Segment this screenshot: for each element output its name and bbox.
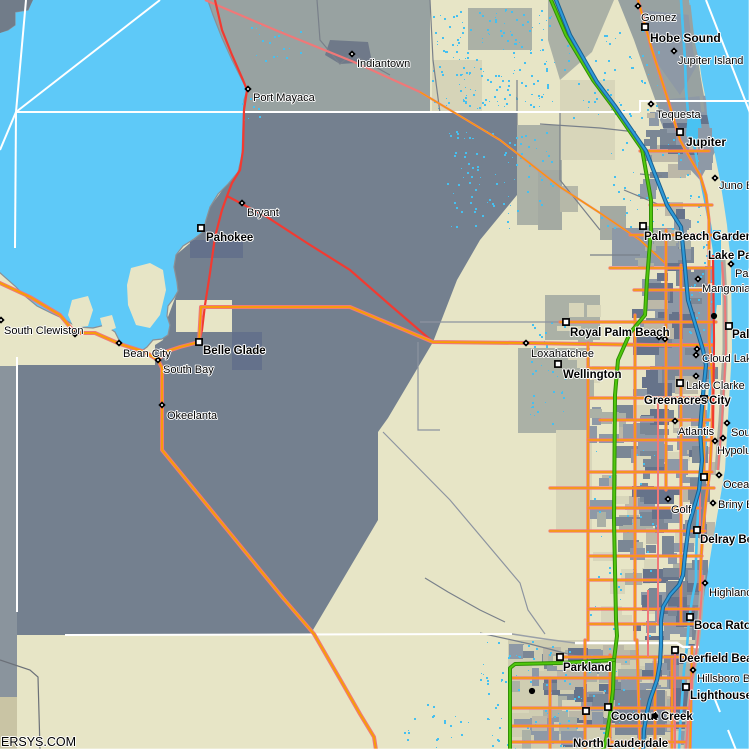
svg-text:Parkland: Parkland	[563, 662, 612, 674]
svg-text:Golf: Golf	[671, 504, 692, 516]
svg-text:Lake Clarke: Lake Clarke	[686, 380, 745, 392]
svg-text:Sout: Sout	[731, 427, 750, 439]
svg-text:North Lauderdale: North Lauderdale	[573, 738, 668, 750]
svg-text:Palm: Palm	[732, 329, 750, 341]
svg-text:Atlantis: Atlantis	[678, 426, 715, 438]
svg-text:Gomez: Gomez	[641, 12, 676, 24]
svg-text:Deerfield Bea: Deerfield Bea	[679, 653, 750, 665]
svg-text:South Clewiston: South Clewiston	[4, 325, 84, 337]
svg-text:Ocean: Ocean	[723, 479, 750, 491]
svg-text:Okeelanta: Okeelanta	[167, 410, 218, 422]
svg-text:Tequesta: Tequesta	[656, 109, 702, 121]
svg-text:Port Mayaca: Port Mayaca	[253, 92, 316, 104]
svg-text:Pahokee: Pahokee	[206, 232, 253, 244]
svg-text:Delray Be: Delray Be	[700, 534, 750, 546]
svg-text:South Bay: South Bay	[163, 364, 214, 376]
svg-text:Juno B: Juno B	[719, 180, 750, 192]
svg-text:Bean City: Bean City	[123, 348, 171, 360]
svg-text:City: City	[709, 395, 731, 407]
svg-text:Loxahatchee: Loxahatchee	[531, 348, 594, 360]
svg-text:Lake Pa: Lake Pa	[708, 250, 750, 262]
svg-text:Hillsboro Be: Hillsboro Be	[697, 673, 750, 685]
svg-text:Cloud Lake: Cloud Lake	[702, 353, 750, 365]
svg-text:Palm Beach Garden: Palm Beach Garden	[644, 231, 750, 243]
svg-text:Belle Glade: Belle Glade	[203, 345, 266, 357]
svg-text:Jupiter: Jupiter	[686, 135, 726, 149]
svg-text:Boca Raton: Boca Raton	[694, 620, 750, 632]
svg-text:Royal Palm Beach: Royal Palm Beach	[570, 327, 670, 339]
svg-text:ERSYS.COM: ERSYS.COM	[1, 735, 76, 749]
svg-text:Bryant: Bryant	[247, 207, 279, 219]
svg-text:Hypolu: Hypolu	[717, 445, 750, 457]
svg-text:Indiantown: Indiantown	[357, 58, 410, 70]
svg-text:Briny B: Briny B	[718, 499, 750, 511]
svg-text:Hobe Sound: Hobe Sound	[650, 31, 721, 45]
svg-text:Wellington: Wellington	[563, 369, 622, 381]
svg-text:Palm: Palm	[735, 268, 750, 280]
svg-text:Mangonia: Mangonia	[702, 283, 750, 295]
svg-text:Jupiter Island: Jupiter Island	[678, 55, 743, 67]
svg-text:Greenacres: Greenacres	[644, 395, 707, 407]
svg-text:Highland: Highland	[709, 587, 750, 599]
svg-text:Lighthouse: Lighthouse	[690, 690, 750, 702]
